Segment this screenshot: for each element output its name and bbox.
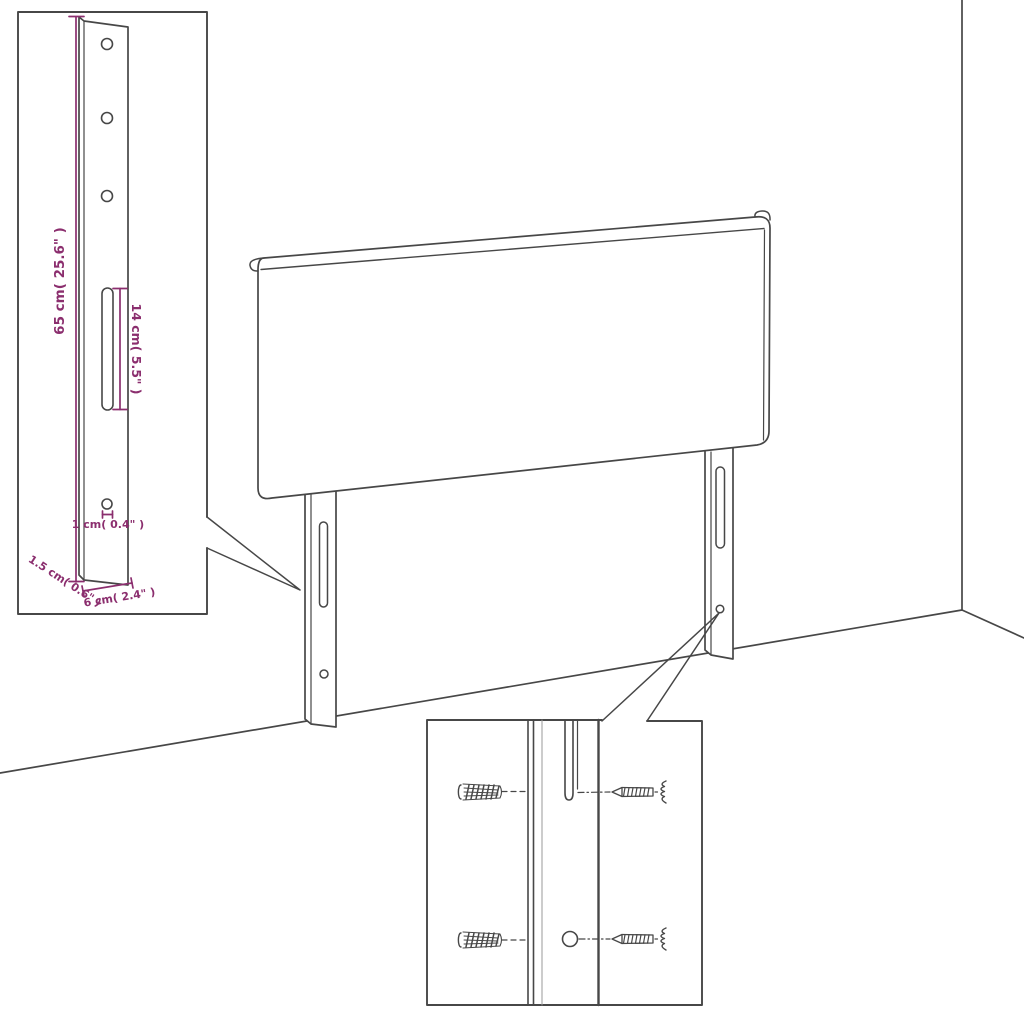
strip-slot xyxy=(565,720,573,800)
headboard-left-leg xyxy=(305,488,336,727)
screw-top xyxy=(612,781,666,803)
hardware-inset-callout-wedge xyxy=(602,613,719,721)
height-dimension-label: 65 cm( 25.6" ) xyxy=(52,227,68,335)
screw-bottom xyxy=(612,928,666,950)
hole-diameter-dimension-label: 1 cm( 0.4" ) xyxy=(72,518,144,531)
floor-line-left xyxy=(0,610,962,773)
guide-dash-screw-top xyxy=(578,792,610,793)
wall-plug-bottom xyxy=(458,932,501,948)
wall-plug-top xyxy=(458,784,501,800)
floor-line-right xyxy=(962,610,1024,638)
strip-hole xyxy=(563,932,578,947)
diagram-page: 65 cm( 25.6" ) 14 cm( 5.5" ) 1 cm( 0.4" … xyxy=(0,0,1024,1024)
line-art xyxy=(0,0,1024,1005)
leg-inset-callout-wedge xyxy=(207,517,300,590)
panel-face xyxy=(258,217,770,499)
slot-length-dimension-label: 14 cm( 5.5" ) xyxy=(129,304,144,395)
headboard-assembly-diagram: 65 cm( 25.6" ) 14 cm( 5.5" ) 1 cm( 0.4" … xyxy=(0,0,1024,1024)
headboard-panel xyxy=(250,211,770,499)
hardware-detail-inset xyxy=(427,613,719,1005)
